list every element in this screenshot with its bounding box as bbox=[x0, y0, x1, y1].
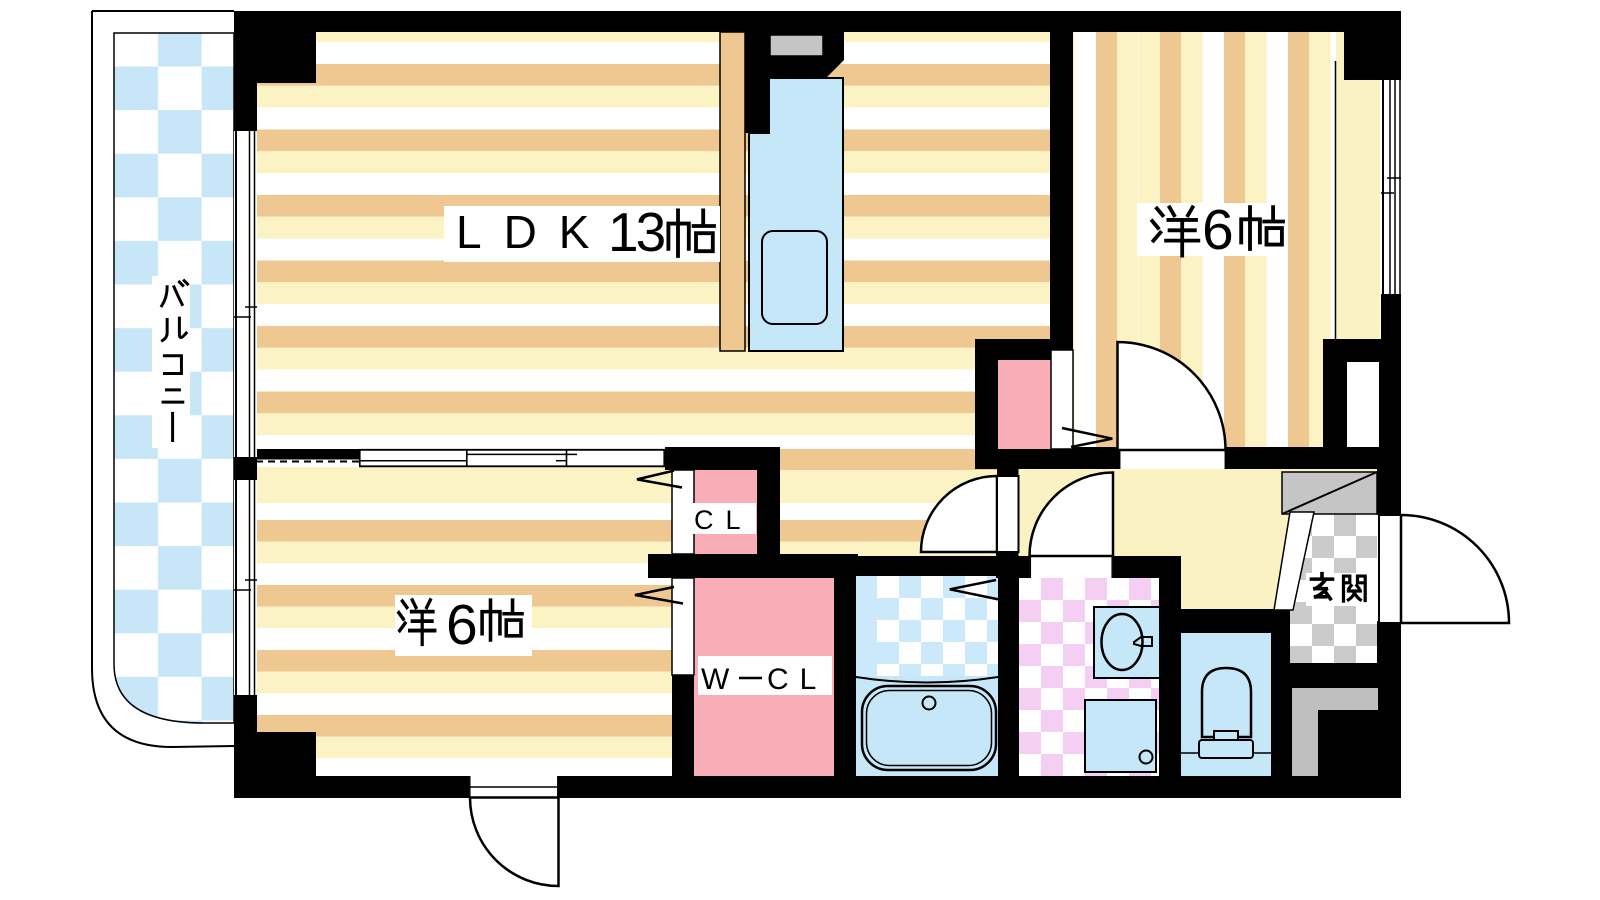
svg-text:W: W bbox=[701, 663, 730, 696]
svg-text:6: 6 bbox=[446, 593, 478, 657]
svg-text:CL: CL bbox=[767, 663, 827, 696]
svg-text:13: 13 bbox=[608, 201, 665, 263]
svg-text:LDK: LDK bbox=[456, 206, 611, 258]
svg-text:CL: CL bbox=[694, 505, 753, 535]
svg-text:6: 6 bbox=[1202, 198, 1234, 262]
